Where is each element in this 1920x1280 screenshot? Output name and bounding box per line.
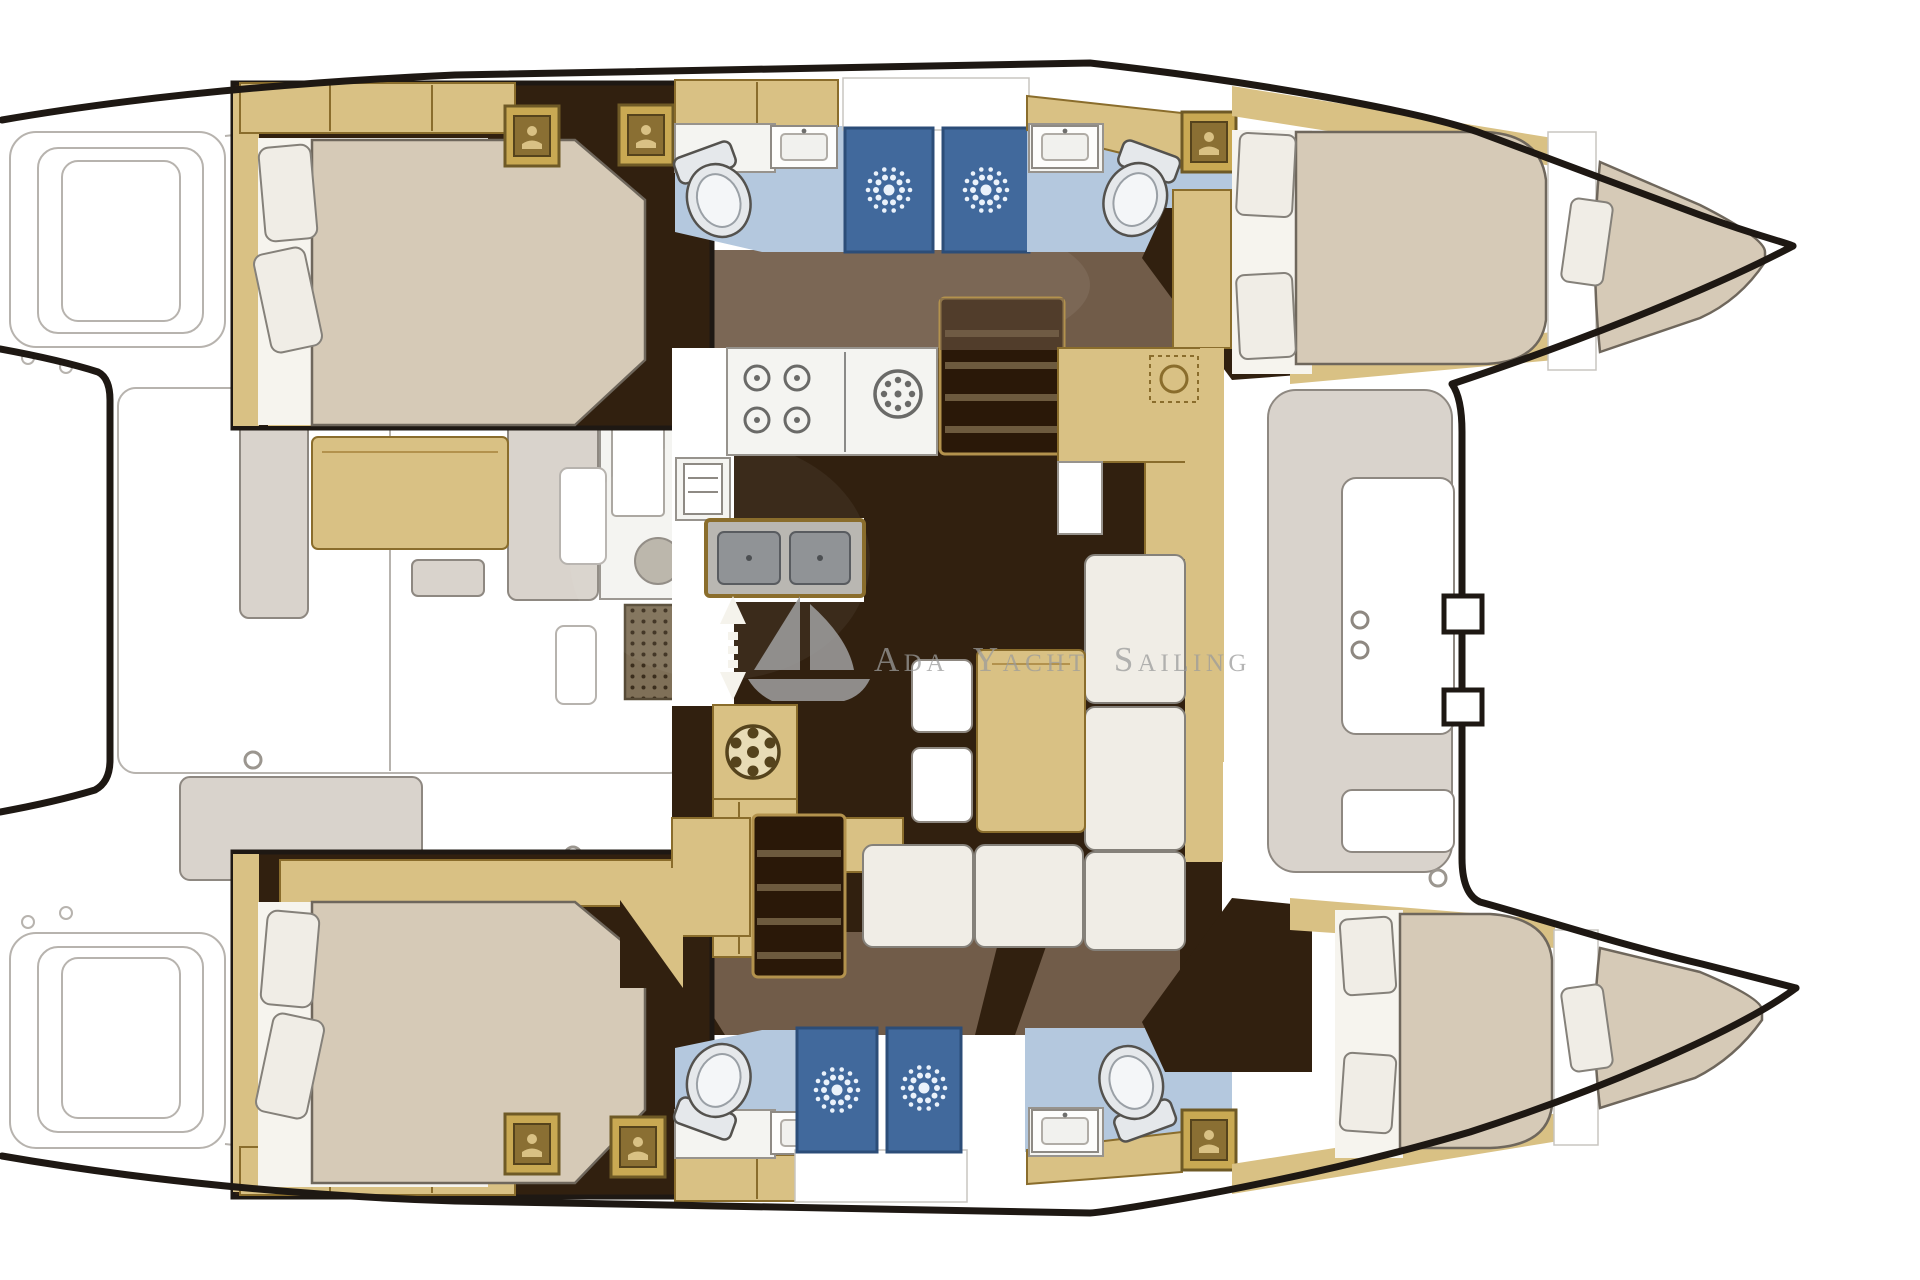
forward-cockpit-well [1342,790,1454,852]
sofa-cushion [1085,852,1185,950]
sink-icon [1032,126,1098,168]
deck-hatch-icon [611,1117,665,1177]
stair-tread [945,426,1059,433]
oven-fridge-door [684,464,722,514]
watermark-text: Ada Yacht Sailing [874,640,1251,679]
stair-tread [945,362,1059,369]
cleat-ring-icon [60,907,72,919]
swim-platform-outline [10,933,225,1148]
floor-plan-svg: Ada Yacht Sailing [0,0,1920,1280]
cleat-ring-icon [22,916,34,928]
sofa-cushion [1085,555,1185,703]
shower-forward-locker [843,78,1029,130]
stair-tread [757,884,841,891]
cabin-side-shelf [233,88,259,426]
cabin-top-locker [240,83,515,133]
aft-bridgedeck-edge [0,349,110,812]
wardrobe [1173,190,1231,348]
sofa-cushion [975,845,1083,947]
transom-step-outline [62,161,180,321]
deck-hatch-icon [1182,112,1236,172]
stair-tread [757,952,841,959]
deck-hatch-icon [1182,1110,1236,1170]
transom-step-outline [62,958,180,1118]
swim-platform-outline [10,132,225,347]
cleat-ring-icon [1430,870,1446,886]
double-bed-mattress [312,140,645,425]
bridgedeck-step-notch [1444,596,1482,632]
cockpit-fitting-sketch [556,626,596,704]
catamaran-floor-plan: Ada Yacht Sailing [0,0,1920,1280]
bridgedeck-step-notch [1444,690,1482,724]
sofa-cushion [863,845,973,947]
deck-hatch-icon [505,1114,559,1174]
sink-icon [771,126,837,168]
pillow [1339,1052,1396,1133]
stove-top [727,348,937,455]
forward-cockpit-well [1342,478,1454,734]
pillow [1236,273,1296,360]
deck-hatch-icon [619,105,673,165]
double-bed-mattress [1296,132,1546,364]
pillow [260,910,320,1008]
double-bed-mattress [312,902,645,1183]
nav-seat [1058,462,1102,534]
deck-hatch-icon [505,106,559,166]
cabin-side-shelf [233,854,259,1192]
stair-tread [945,394,1059,401]
stair-tread [757,850,841,857]
sink-icon [1032,1110,1098,1152]
cockpit-table [312,437,508,549]
companionway-wall [672,818,750,936]
pillow [1339,916,1396,995]
port-aft-head [671,80,845,252]
starboard-showers [795,1028,967,1202]
cockpit-bench [412,560,484,596]
sofa-cushion [1085,707,1185,850]
stove-burner-icon [875,371,921,417]
stool [912,748,972,822]
sink-drain [817,555,823,561]
port-fore-cabin [1142,86,1765,384]
stair-top-overlay [940,298,1064,350]
shower-aft-locker [795,1150,967,1202]
cleat-ring-icon [245,752,261,768]
salon-front-wall [1200,348,1224,762]
sink-drain [746,555,752,561]
port-companionway [940,298,1064,454]
stair-tread [757,918,841,925]
pillow [258,144,318,242]
forward-cockpit [1268,390,1454,886]
vent-fan-icon [727,726,779,778]
pillow [1236,133,1296,218]
